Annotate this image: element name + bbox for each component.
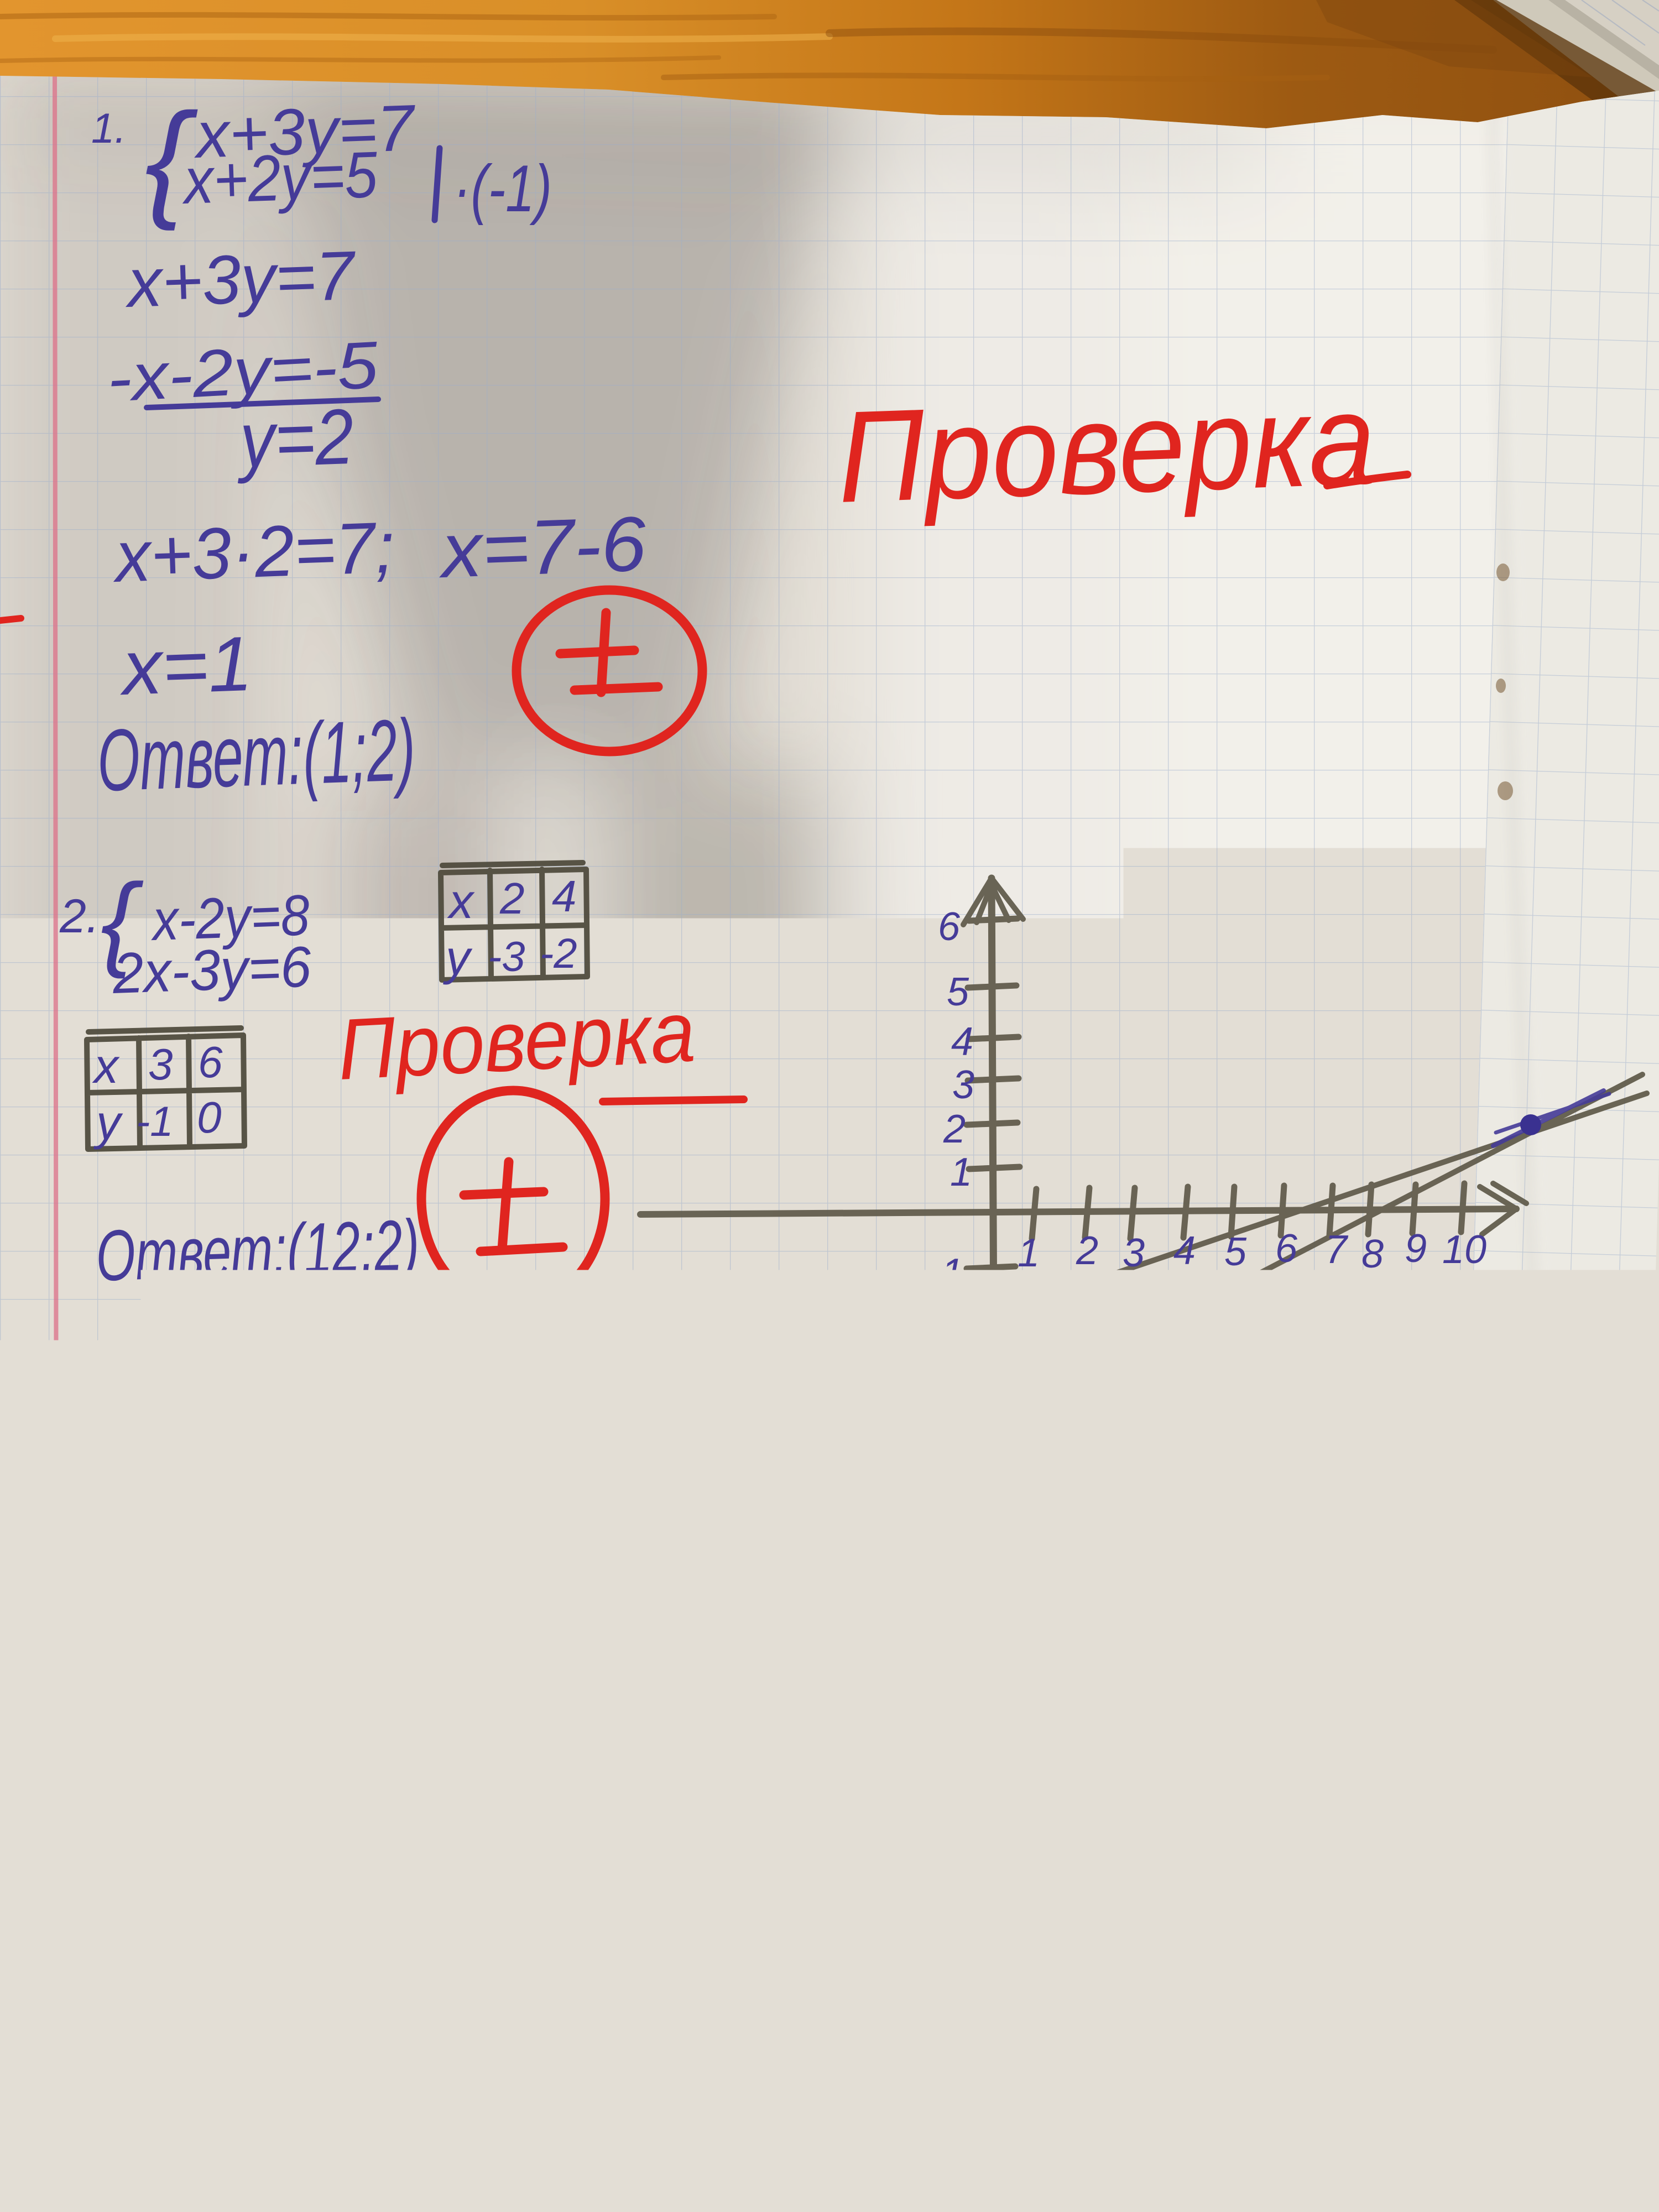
svg-text:-3: -3 <box>488 933 525 980</box>
svg-text:4: 4 <box>552 872 577 921</box>
svg-text:·(-1): ·(-1) <box>453 152 552 226</box>
svg-text:6: 6 <box>198 1037 223 1087</box>
svg-text:x: x <box>92 1039 120 1093</box>
svg-text:Проверка: Проверка <box>336 983 697 1098</box>
svg-text:Ответ:(12;2): Ответ:(12;2) <box>95 1204 421 1296</box>
svg-text:3: 3 <box>148 1040 173 1089</box>
svg-text:y: y <box>443 930 473 985</box>
svg-text:1: 1 <box>950 1150 972 1194</box>
svg-text:Тут 2 пересечения: Тут 2 пересечения <box>78 1774 510 1844</box>
svg-text:6: 6 <box>938 905 961 949</box>
svg-text:y: y <box>93 1095 123 1150</box>
svg-text:подстановки: подстановки <box>559 1825 1029 1925</box>
svg-text:-2: -2 <box>990 2024 1025 2068</box>
svg-text:-2: -2 <box>918 1954 953 1999</box>
svg-text:Ответ:[0;2] и [1;3]: Ответ:[0;2] и [1;3] <box>89 1981 571 2064</box>
svg-text:-3: -3 <box>989 2065 1024 2109</box>
svg-text:2.: 2. <box>59 890 100 943</box>
svg-text:решить: решить <box>593 1646 913 1756</box>
svg-text:2: 2 <box>1136 1953 1159 1997</box>
svg-text:x+3·2=7;: x+3·2=7; <box>111 506 396 597</box>
svg-text:-3: -3 <box>931 1347 967 1391</box>
svg-text:1: 1 <box>1018 1231 1040 1275</box>
svg-text:4: 4 <box>1173 1229 1196 1273</box>
svg-text:5: 5 <box>947 970 969 1014</box>
svg-text:1: 1 <box>1094 1957 1116 2001</box>
svg-text:-4: -4 <box>930 1395 966 1439</box>
svg-text:Проверка: Проверка <box>836 366 1378 530</box>
svg-text:-2: -2 <box>540 930 577 977</box>
svg-text:Проверка: Проверка <box>1164 1963 1600 2097</box>
svg-text:8: 8 <box>1433 1923 1455 1968</box>
svg-text:y-x<1: y-x<1 <box>794 2039 934 2115</box>
svg-text:x²-y≤1: x²-y≤1 <box>1110 1785 1266 1853</box>
svg-text:0: 0 <box>197 1093 222 1142</box>
svg-text:-4: -4 <box>817 1949 853 1993</box>
svg-text:-6: -6 <box>933 1502 969 1546</box>
svg-text:6: 6 <box>1275 1227 1298 1271</box>
svg-text:-3: -3 <box>863 1951 898 1995</box>
svg-text:x+2y=5: x+2y=5 <box>180 138 379 218</box>
svg-text:3: 3 <box>1123 1231 1145 1275</box>
svg-text:x²-y≤1: x²-y≤1 <box>153 1606 313 1676</box>
svg-text:7: 7 <box>1325 1228 1349 1272</box>
svg-text:x: x <box>447 874 475 928</box>
svg-text:2 решения, значит:: 2 решения, значит: <box>78 1888 521 1958</box>
svg-text:2: 2 <box>1076 1229 1098 1273</box>
svg-text:2: 2 <box>499 874 525 923</box>
svg-text:3: 3 <box>1086 1764 1108 1808</box>
svg-text:x=7-6: x=7-6 <box>436 500 648 594</box>
svg-text:Ответ:(1;2): Ответ:(1;2) <box>96 701 417 810</box>
svg-text:1: 1 <box>1067 1865 1089 1909</box>
svg-text:9: 9 <box>1405 1227 1427 1271</box>
svg-text:2: 2 <box>943 1107 966 1151</box>
svg-text:x=1: x=1 <box>117 620 253 711</box>
svg-text:5: 5 <box>1224 1230 1247 1274</box>
svg-text:4: 4 <box>951 1020 973 1064</box>
svg-text:4: 4 <box>1093 1708 1115 1752</box>
svg-text:x-3y=6: x-3y=6 <box>799 1285 963 1351</box>
svg-text:1.: 1. <box>91 105 126 152</box>
svg-text:методом: методом <box>567 1749 905 1844</box>
svg-text:x+3y=7: x+3y=7 <box>123 237 358 322</box>
svg-text:y-x<5: y-x<5 <box>155 1668 311 1738</box>
svg-text:-1: -1 <box>136 1098 174 1145</box>
svg-text:3: 3 <box>952 1063 974 1107</box>
svg-text:-2: -2 <box>962 1307 998 1352</box>
svg-text:3.: 3. <box>72 1632 111 1684</box>
svg-text:-5: -5 <box>937 1448 973 1492</box>
svg-text:8: 8 <box>1361 1232 1384 1276</box>
svg-text:y=2: y=2 <box>234 393 355 484</box>
svg-text:2x-3y=6: 2x-3y=6 <box>111 935 312 1006</box>
svg-text:10: 10 <box>1442 1228 1486 1272</box>
svg-text:2: 2 <box>1079 1808 1102 1853</box>
